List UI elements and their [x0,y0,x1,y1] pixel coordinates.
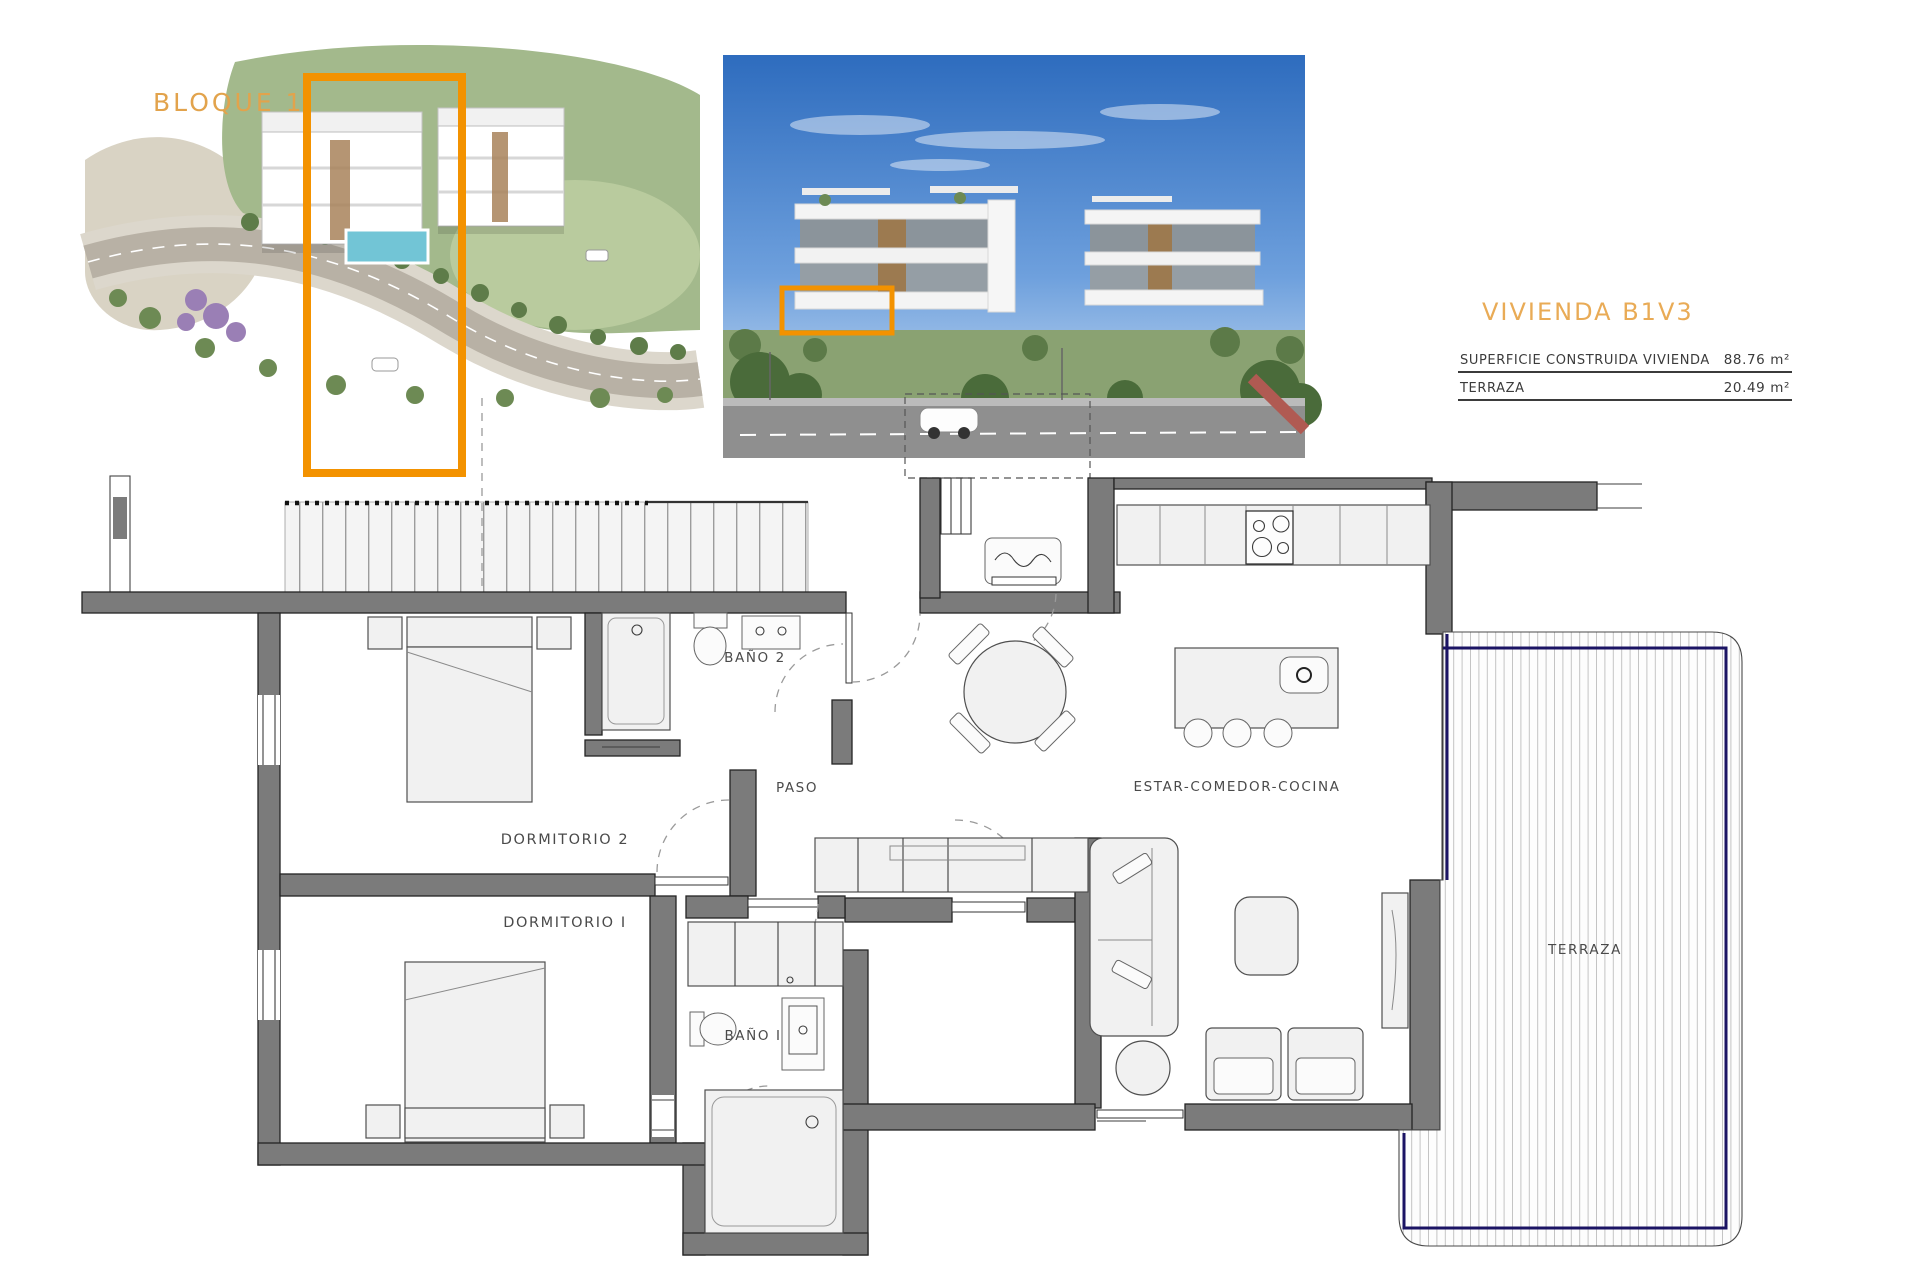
dorm1-closet [688,922,843,986]
photo-building-left [795,186,1018,312]
aerial-pool [346,230,428,263]
aerial-render [85,10,700,408]
kitchen [1117,505,1430,565]
room-label-bano1: BAÑO I [724,1027,781,1044]
dining-set [948,623,1076,754]
room-label-estar: ESTAR-COMEDOR-COCINA [1134,779,1341,795]
bloque-label: BLOQUE 1 [153,88,305,117]
area-table-row: TERRAZA 20.49 m² [1458,380,1792,401]
kitchen-island [1175,648,1338,747]
dorm1-furniture [366,962,584,1142]
pergola-deck [285,502,808,592]
photo-building-right [1085,196,1263,305]
aerial-building-2 [438,108,564,234]
stove-icon [1246,511,1293,564]
room-label-terraza: TERRAZA [1547,942,1622,958]
armchair [1288,1028,1363,1100]
aerial-car [372,358,398,371]
room-label-dormitorio1: DORMITORIO I [503,915,627,931]
area-table-row: SUPERFICIE CONSTRUIDA VIVIENDA 88.76 m² [1458,352,1792,373]
terrace [1399,632,1742,1246]
armchair [1206,1028,1281,1100]
room-label-bano2: BAÑO 2 [724,649,786,666]
bano2-fixtures [602,613,800,730]
area-row-label: TERRAZA [1460,381,1525,396]
floor-plan: BAÑO 2 PASO DORMITORIO 2 DORMITORIO I BA… [82,394,1742,1255]
room-label-paso: PASO [776,780,818,796]
photo-render [723,55,1322,458]
page-title: VIVIENDA B1V3 [1482,298,1694,326]
area-table: SUPERFICIE CONSTRUIDA VIVIENDA 88.76 m² … [1458,352,1792,408]
living-furniture [1090,838,1408,1100]
dorm2-furniture [368,617,571,802]
hall-closet [815,838,1088,892]
room-label-dormitorio2: DORMITORIO 2 [501,832,630,848]
plan-sheet: BAÑO 2 PASO DORMITORIO 2 DORMITORIO I BA… [0,0,1920,1280]
area-row-value: 20.49 m² [1724,380,1790,396]
area-row-label: SUPERFICIE CONSTRUIDA VIVIENDA [1460,353,1710,368]
area-row-value: 88.76 m² [1724,352,1790,368]
sheet-canvas: BAÑO 2 PASO DORMITORIO 2 DORMITORIO I BA… [0,0,1920,1280]
